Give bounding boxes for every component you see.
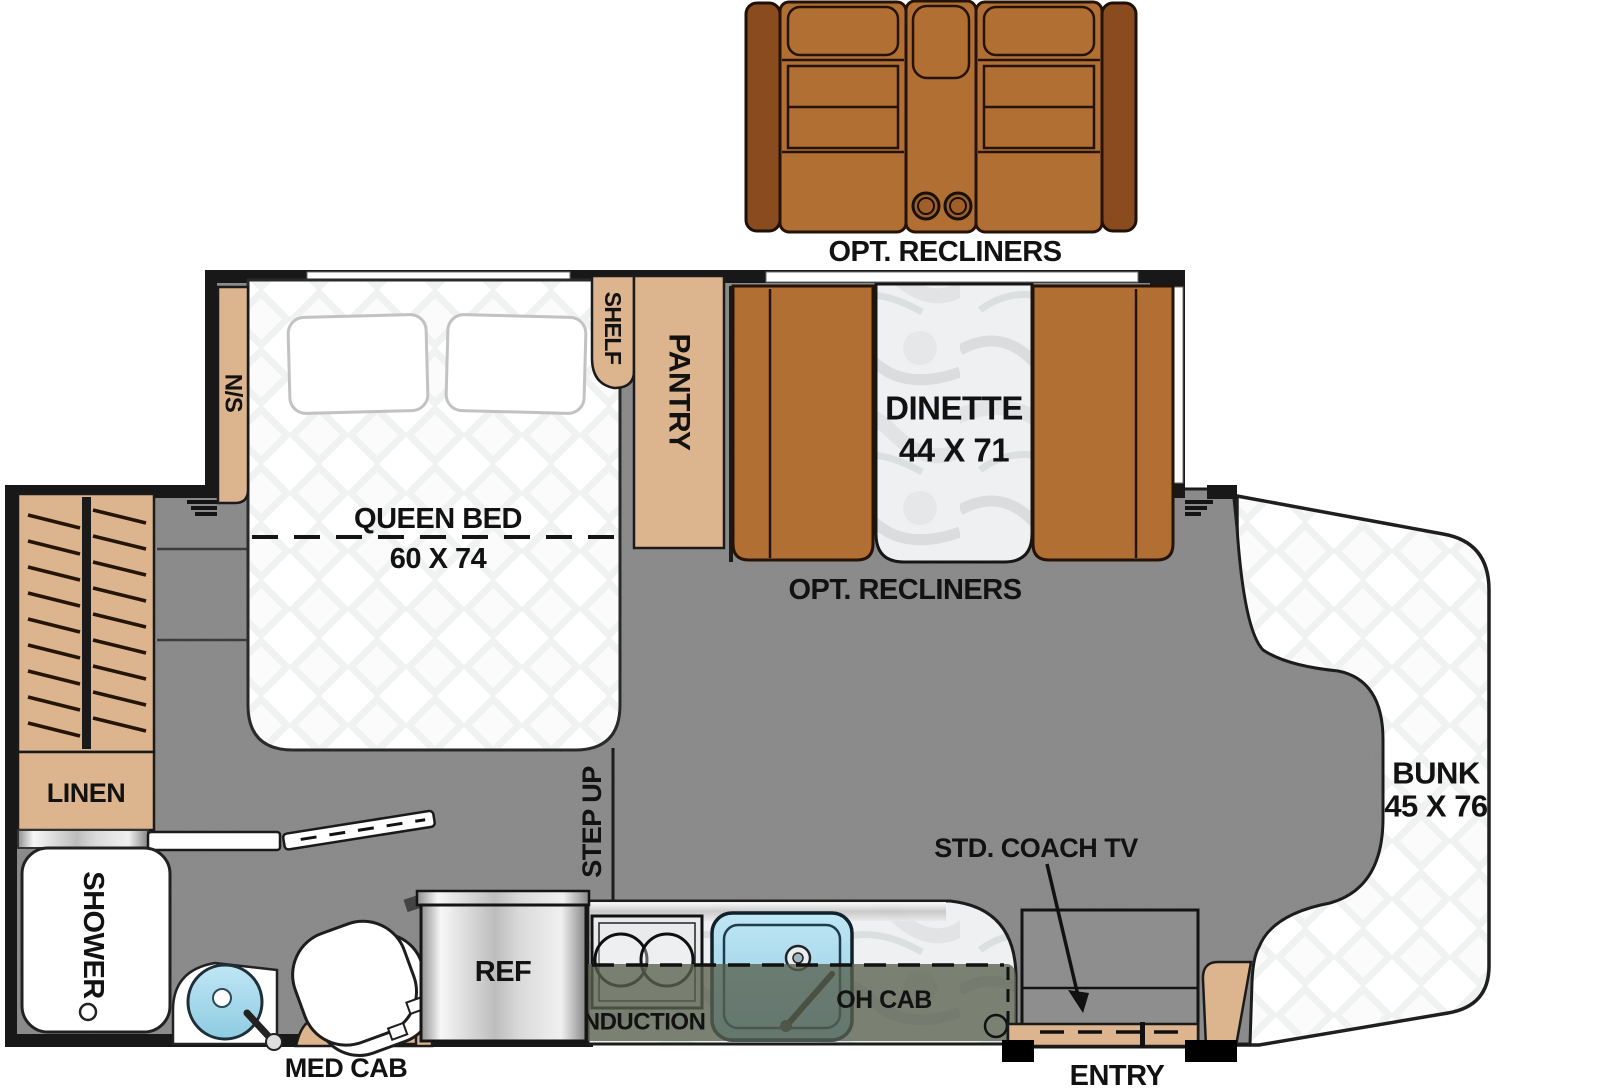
bunk-size-label: 45 X 76	[1384, 789, 1488, 824]
entry-door-frame	[1185, 1040, 1237, 1062]
nightstand-label: N/S	[220, 374, 247, 413]
queen-bed: QUEEN BED 60 X 74	[248, 280, 620, 750]
dinette-label: DINETTE	[885, 390, 1023, 427]
pillow	[288, 314, 428, 414]
cup-holder-icon	[945, 193, 971, 219]
coach-tv-label: STD. COACH TV	[934, 833, 1138, 863]
refrigerator: REF	[404, 891, 589, 1041]
bath-vanity	[173, 963, 282, 1050]
shower-label: SHOWER	[77, 871, 109, 999]
pillow	[446, 314, 586, 414]
dinette-bench-left	[733, 286, 873, 560]
dinette-bench-right	[1033, 286, 1173, 560]
induction-label: INDUCTION	[577, 1009, 706, 1036]
opt-recliners-top-label: OPT. RECLINERS	[828, 236, 1061, 268]
recliner-seat-right	[976, 2, 1102, 232]
pantry-label: PANTRY	[663, 334, 696, 451]
entry-threshold	[1008, 1024, 1198, 1046]
faucet-base-icon	[266, 1034, 282, 1050]
pantry: PANTRY	[634, 276, 724, 548]
recliner-seat-left	[780, 2, 906, 232]
bath-wall-stub	[148, 832, 280, 850]
sink-drain-icon	[213, 989, 231, 1007]
dinette-window	[766, 272, 1138, 282]
dinette-size-label: 44 X 71	[899, 432, 1009, 469]
hanger-rod-icon	[82, 497, 91, 749]
dinette-table: DINETTE 44 X 71	[876, 284, 1032, 562]
nightstand: N/S	[218, 287, 248, 503]
recliner-console	[906, 1, 976, 232]
door-track	[18, 830, 148, 848]
optional-recliners-top: OPT. RECLINERS	[746, 1, 1136, 268]
wardrobe	[18, 494, 154, 752]
ref-label: REF	[475, 956, 532, 988]
entry-steps	[1008, 910, 1222, 1047]
shower: SHOWER	[22, 848, 170, 1032]
bunk-label: BUNK	[1392, 756, 1481, 791]
recliner-armrest-right	[1102, 3, 1136, 231]
entry-label: ENTRY	[1070, 1060, 1165, 1089]
recliner-armrest-left	[746, 3, 780, 231]
shelf-label: SHELF	[600, 292, 626, 365]
oh-cab-label: OH CAB	[836, 986, 932, 1014]
opt-recliners-bottom-label: OPT. RECLINERS	[788, 574, 1021, 606]
side-window	[1174, 287, 1183, 483]
entry-door-frame	[1002, 1040, 1034, 1062]
drain-icon	[80, 1004, 96, 1020]
shelf: SHELF	[592, 276, 634, 388]
linen-cabinet: LINEN	[18, 752, 154, 830]
floorplan-page: OPT. RECLINERS QUEEN BED 60 X 74	[0, 0, 1600, 1089]
queen-bed-size-label: 60 X 74	[390, 543, 487, 575]
cup-holder-icon	[913, 193, 939, 219]
door-post-icon	[1140, 1022, 1145, 1047]
step-up-label: STEP UP	[577, 766, 607, 878]
med-cab-label: MED CAB	[285, 1053, 408, 1083]
floorplan-svg: OPT. RECLINERS QUEEN BED 60 X 74	[0, 0, 1600, 1089]
queen-bed-label: QUEEN BED	[354, 503, 522, 535]
dinette: DINETTE 44 X 71 OPT. RECLINERS	[729, 284, 1173, 606]
linen-label: LINEN	[47, 778, 126, 808]
